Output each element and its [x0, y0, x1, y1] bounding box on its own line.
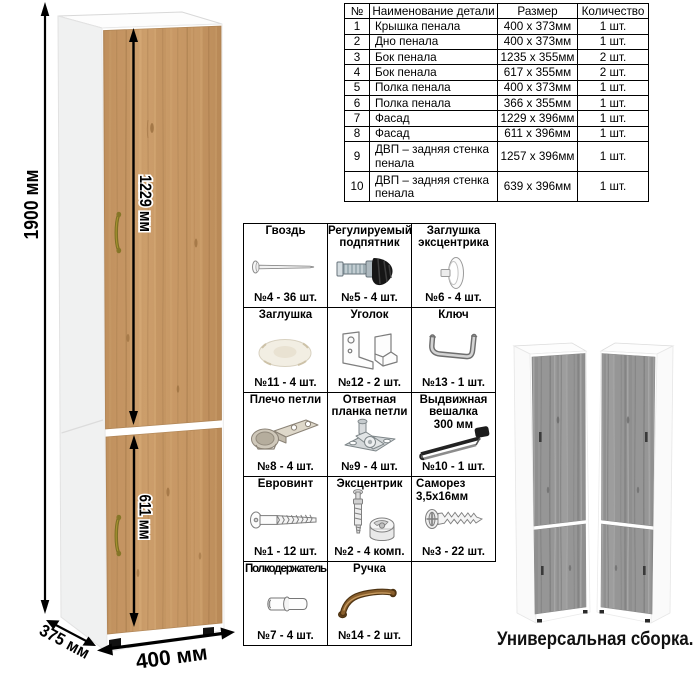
svg-text:1229 мм: 1229 мм: [136, 175, 155, 232]
svg-text:400 мм: 400 мм: [134, 641, 208, 673]
svg-text:1900 мм: 1900 мм: [20, 170, 43, 240]
svg-text:611 мм: 611 мм: [136, 495, 155, 540]
